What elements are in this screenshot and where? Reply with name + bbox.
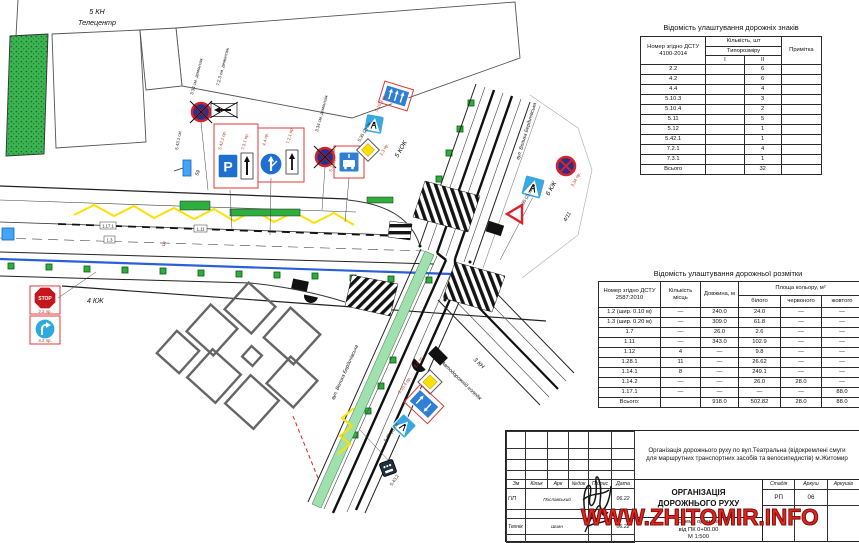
sign-label: 5.43.1 см. — [174, 130, 182, 150]
cell — [781, 135, 821, 145]
cell — [706, 85, 744, 95]
table-row: Номер згідно ДСТУ 4100-2014 Кількість, ш… — [641, 37, 822, 47]
project-description: Організація дорожнього руху по вул.Театр… — [635, 431, 859, 480]
cell — [706, 75, 744, 85]
label-59: 59 — [194, 169, 202, 176]
signs-table-title: Відомість улаштування дорожніх знаків — [640, 23, 822, 32]
cell: — — [781, 338, 822, 348]
cell: 4.4 — [641, 85, 706, 95]
cell — [781, 165, 821, 175]
cell: — — [701, 358, 739, 368]
cell: Зм — [507, 480, 526, 489]
cell — [706, 135, 744, 145]
blue-lane-line — [0, 259, 452, 274]
table-row: 4.44 — [641, 85, 822, 95]
cell: 3 — [744, 95, 781, 105]
cell: 5.10.4 — [641, 105, 706, 115]
cell: 88.0 — [822, 388, 859, 398]
table-row: 1.124—9.8—— — [599, 348, 859, 358]
svg-text:P: P — [223, 159, 232, 175]
label-telecentr: Телецентр — [78, 18, 116, 27]
cell: Всього: — [599, 398, 661, 408]
cell: 5.12 — [641, 125, 706, 135]
cell: 102.9 — [739, 338, 781, 348]
label-street-south: вул. Велика Бердичівська — [330, 344, 360, 401]
cell: I — [706, 56, 744, 65]
cell: 2.6 — [739, 328, 781, 338]
cell: 1 — [744, 125, 781, 135]
table-row: 5.42.11 — [641, 135, 822, 145]
mandatory-direction-sign-icon — [260, 153, 282, 175]
sign-label: 5.43.2 — [389, 473, 400, 486]
cell: 1.14.1 — [599, 368, 661, 378]
cell: 26.62 — [739, 358, 781, 368]
cell: Типорозміру — [706, 47, 781, 56]
arrow-plate-sign-icon — [286, 150, 298, 174]
cell: білого — [739, 295, 781, 307]
cell: II — [744, 56, 781, 65]
cell: — — [701, 378, 739, 388]
svg-text:1.11: 1.11 — [197, 226, 206, 231]
cell: 4 — [744, 85, 781, 95]
cell: Площа кольору, м² — [739, 282, 859, 296]
sign-label: 4.4 пр. — [261, 132, 269, 146]
cell: 1 — [744, 135, 781, 145]
table-row: 7.3.11 — [641, 155, 822, 165]
cell: Номер згідно ДСТУ 2587:2010 — [599, 282, 661, 308]
cell: Арк — [548, 480, 569, 489]
table-row: 1.7—26.02.6—— — [599, 328, 859, 338]
table-row: Всього:918.0502.8228.088.0 — [599, 398, 859, 408]
cell: 4.2 — [641, 75, 706, 85]
cell: — — [822, 348, 859, 358]
cell: 4 — [661, 348, 701, 358]
table-row: 5.10.33 — [641, 95, 822, 105]
sign-label: 4.2 пр. — [38, 338, 51, 343]
label-kzh6: 6 КЖ — [545, 179, 559, 197]
cell — [781, 115, 821, 125]
table-row: 5.115 — [641, 115, 822, 125]
cell: — — [661, 388, 701, 398]
cell — [661, 398, 701, 408]
cell: 2.2 — [641, 65, 706, 75]
traffic-plan-sheet: { "watermark": "WWW.ZHITOMIR.INFO", "col… — [0, 0, 859, 541]
cell — [781, 95, 821, 105]
cell — [781, 85, 821, 95]
cell: 8 — [661, 368, 701, 378]
sheets-value — [828, 490, 859, 506]
arrow-plate-sign-icon — [241, 153, 253, 179]
table-row: 1.14.2——26.028.0— — [599, 378, 859, 388]
cell: 11 — [661, 358, 701, 368]
table-row: 5.10.42 — [641, 105, 822, 115]
label-kzh4: 4 КЖ — [87, 298, 104, 305]
table-row: Всього32 — [641, 165, 822, 175]
cell — [706, 155, 744, 165]
cell: 502.82 — [739, 398, 781, 408]
table-row: 1.11—343.0102.9—— — [599, 338, 859, 348]
svg-text:STOP: STOP — [38, 296, 52, 302]
cell: — — [701, 388, 739, 398]
cell: 5.42.1 — [641, 135, 706, 145]
svg-text:1.17.1: 1.17.1 — [102, 223, 114, 228]
cell: 240.0 — [701, 308, 739, 318]
buildings-layer — [6, 0, 592, 278]
sign-label: 2.3 пр. — [379, 142, 390, 156]
cell: 5 — [744, 115, 781, 125]
cell — [781, 65, 821, 75]
cell: 249.1 — [739, 368, 781, 378]
cell: Номер згідно ДСТУ 4100-2014 — [641, 37, 706, 65]
cell: — — [822, 308, 859, 318]
cell: Довжина, м — [701, 282, 739, 308]
cell: — — [781, 388, 822, 398]
cell: Кількість, шт — [706, 37, 781, 47]
sign-label: 7.3.1 пр. — [240, 133, 249, 151]
cell: — — [781, 308, 822, 318]
no-stopping-sign-icon — [557, 157, 575, 175]
cell: 1.2 (шир. 0.10 м) — [599, 308, 661, 318]
cell: Примітка — [781, 37, 821, 65]
parking-sign-icon: P — [218, 154, 238, 178]
sheet-label: Аркуш — [795, 480, 827, 490]
cell: 6 — [744, 65, 781, 75]
label-house411: 4/11 — [563, 211, 573, 223]
cell: — — [661, 328, 701, 338]
cell: 1.3 (шир. 0.20 м) — [599, 318, 661, 328]
cell: 1.28.1 — [599, 358, 661, 368]
cell: — — [781, 348, 822, 358]
label-kn3: 3 КН — [472, 357, 486, 371]
cell: ГІП — [507, 489, 526, 510]
cell: жовтого — [822, 295, 859, 307]
cell: 5.10.3 — [641, 95, 706, 105]
markings-table: Номер згідно ДСТУ 2587:2010 Кількість мі… — [598, 281, 859, 408]
table-row: 1.2 (шир. 0.10 м)—240.024.0—— — [599, 308, 859, 318]
cell: — — [661, 378, 701, 388]
arrow-plate-sign-icon — [210, 102, 238, 118]
cell: 1.17.1 — [599, 388, 661, 398]
cell: Технік — [507, 519, 526, 535]
cell — [706, 105, 744, 115]
plaza-paving-blocks — [157, 283, 320, 429]
signs-table: Номер згідно ДСТУ 4100-2014 Кількість, ш… — [640, 36, 822, 175]
cell: — — [661, 308, 701, 318]
table-row: 2.26 — [641, 65, 822, 75]
green-area — [6, 34, 48, 156]
stop-sign-icon: STOP — [34, 287, 56, 309]
cell: 61.8 — [739, 318, 781, 328]
cell: 1 — [744, 155, 781, 165]
cell: 24.0 — [739, 308, 781, 318]
cell: 28.0 — [781, 378, 822, 388]
cell: 6 — [744, 75, 781, 85]
cell: 26.0 — [701, 328, 739, 338]
bus-lane-sign-icon — [339, 152, 359, 172]
cell: Кількість місць — [661, 282, 701, 308]
marking-tags: 1.17.1 1.11 1.3 — [100, 222, 207, 243]
cell — [706, 115, 744, 125]
cell: — — [701, 348, 739, 358]
cell — [706, 125, 744, 135]
table-row: 5.121 — [641, 125, 822, 135]
cell: 343.0 — [701, 338, 739, 348]
sign-label: 5.42.1 пр. — [217, 130, 227, 150]
cell: — — [781, 328, 822, 338]
label-route-3: 3 — [162, 241, 166, 248]
cell: 1.7 — [599, 328, 661, 338]
cell: — — [781, 368, 822, 378]
cell: 26.0 — [739, 378, 781, 388]
cell: 1.11 — [599, 338, 661, 348]
scheme-line: М 1:500 — [635, 534, 762, 541]
cell — [781, 75, 821, 85]
markings-table-title: Відомість улаштування дорожньої розмітки — [598, 269, 858, 278]
cell: — — [822, 338, 859, 348]
cell: — — [661, 338, 701, 348]
table-row: 7.2.14 — [641, 145, 822, 155]
cell: 1.12 — [599, 348, 661, 358]
cell — [781, 125, 821, 135]
cell: — — [661, 318, 701, 328]
svg-text:1.3: 1.3 — [107, 237, 113, 242]
cell: 4 — [744, 145, 781, 155]
stage-label: Стадія — [763, 480, 795, 490]
yield-sign-icon — [507, 205, 522, 223]
label-telecentr-number: 5 КН — [89, 7, 105, 16]
cell: червоного — [781, 295, 822, 307]
sign-label: 7.2.1 пр. — [285, 127, 294, 145]
cell — [706, 145, 744, 155]
cell — [706, 165, 744, 175]
table-row: 1.28.111—26.62—— — [599, 358, 859, 368]
table-row: 4.26 — [641, 75, 822, 85]
cell: — — [822, 318, 859, 328]
watermark: WWW.ZHITOMIR.INFO — [581, 504, 819, 531]
table-row: 1.17.1————88.0 — [599, 388, 859, 398]
cell: 309.0 — [701, 318, 739, 328]
cell: — — [781, 358, 822, 368]
cell — [781, 155, 821, 165]
cell: — — [822, 368, 859, 378]
table-row: Номер згідно ДСТУ 2587:2010 Кількість мі… — [599, 282, 859, 296]
cell: 88.0 — [822, 398, 859, 408]
cell — [706, 95, 744, 105]
sheets-label: Аркушів — [828, 480, 859, 490]
cell: 32 — [744, 165, 781, 175]
cell: 5.11 — [641, 115, 706, 125]
table-row: 1.3 (шир. 0.20 м)—309.061.8—— — [599, 318, 859, 328]
cell: — — [701, 368, 739, 378]
cell: 1.14.2 — [599, 378, 661, 388]
sign-label: 2.2 пр. — [38, 309, 51, 314]
cell: 9.8 — [739, 348, 781, 358]
cell: 918.0 — [701, 398, 739, 408]
label-kok5: 5 КОК — [394, 139, 410, 159]
cell: — — [822, 358, 859, 368]
cell: — — [822, 378, 859, 388]
turn-right-sign-icon — [35, 319, 55, 339]
no-stopping-sign-icon — [190, 101, 212, 123]
cell — [781, 145, 821, 155]
cell: — — [822, 328, 859, 338]
cell: Всього — [641, 165, 706, 175]
cell: 7.3.1 — [641, 155, 706, 165]
cell — [781, 105, 821, 115]
cell: — — [781, 318, 822, 328]
cell: 28.0 — [781, 398, 822, 408]
cell: 2 — [744, 105, 781, 115]
cell: — — [739, 388, 781, 398]
table-row: 1.14.18—249.1—— — [599, 368, 859, 378]
cell: 7.2.1 — [641, 145, 706, 155]
cell — [706, 65, 744, 75]
cell: Кільк — [526, 480, 548, 489]
